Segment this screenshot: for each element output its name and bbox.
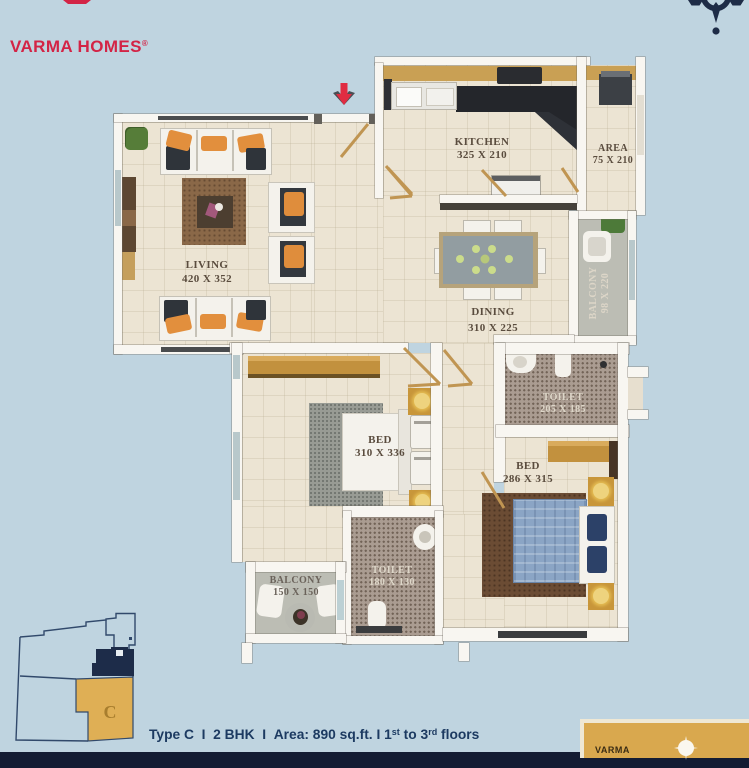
svg-text:C: C [104, 702, 117, 722]
